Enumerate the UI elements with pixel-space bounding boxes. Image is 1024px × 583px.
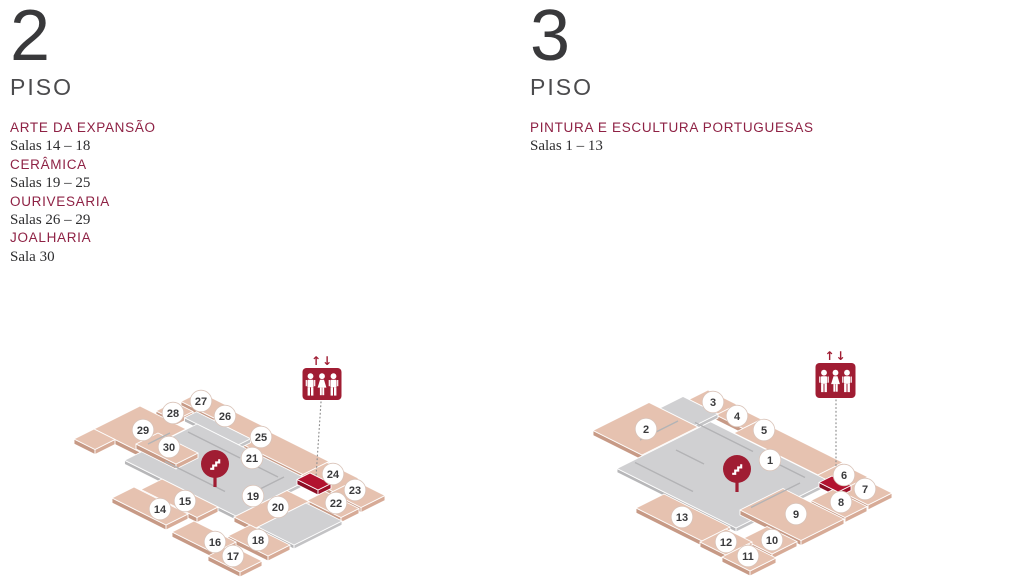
- room-marker-9: 9: [785, 503, 807, 525]
- floor-plans: ↑↓2728262930252124232219201514161817↑↓34…: [0, 0, 1024, 583]
- room-marker-30: 30: [158, 436, 180, 458]
- svg-text:6: 6: [841, 470, 847, 482]
- svg-text:5: 5: [761, 425, 767, 437]
- room-marker-10: 10: [761, 529, 783, 551]
- svg-text:12: 12: [720, 537, 732, 549]
- svg-text:14: 14: [154, 504, 167, 516]
- room-marker-22: 22: [325, 492, 347, 514]
- room-marker-6: 6: [833, 464, 855, 486]
- svg-text:17: 17: [227, 551, 239, 563]
- room-marker-28: 28: [162, 402, 184, 424]
- room-marker-20: 20: [267, 496, 289, 518]
- svg-text:7: 7: [862, 484, 868, 496]
- room-marker-14: 14: [149, 498, 171, 520]
- svg-text:8: 8: [838, 497, 844, 509]
- svg-text:19: 19: [247, 491, 259, 503]
- svg-text:24: 24: [327, 469, 340, 481]
- svg-text:↑↓: ↑↓: [824, 349, 846, 363]
- isometric-plan-floor-2: ↑↓2728262930252124232219201514161817: [74, 354, 385, 577]
- room-marker-19: 19: [242, 485, 264, 507]
- svg-text:29: 29: [137, 425, 149, 437]
- room-marker-2: 2: [635, 418, 657, 440]
- elevator-icon: ↑↓: [816, 349, 856, 398]
- room-marker-17: 17: [222, 545, 244, 567]
- svg-text:30: 30: [163, 442, 175, 454]
- svg-text:28: 28: [167, 408, 179, 420]
- room-marker-4: 4: [726, 405, 748, 427]
- svg-text:3: 3: [710, 397, 716, 409]
- svg-text:10: 10: [766, 535, 778, 547]
- room-marker-3: 3: [702, 391, 724, 413]
- room-marker-15: 15: [174, 490, 196, 512]
- room-marker-25: 25: [250, 426, 272, 448]
- room-marker-29: 29: [132, 419, 154, 441]
- floor-guide-page: { "colors":{ "pink":{"top":"#e6c2b0","le…: [0, 0, 1024, 583]
- svg-text:1: 1: [767, 455, 773, 467]
- room-marker-8: 8: [830, 491, 852, 513]
- elevator-icon: ↑↓: [303, 354, 342, 400]
- svg-text:16: 16: [209, 537, 221, 549]
- svg-text:13: 13: [676, 512, 688, 524]
- isometric-plan-floor-3: ↑↓34251678913101211: [593, 349, 892, 576]
- svg-text:22: 22: [330, 498, 342, 510]
- svg-text:21: 21: [246, 453, 258, 465]
- room-marker-1: 1: [759, 449, 781, 471]
- svg-text:23: 23: [349, 485, 361, 497]
- room-marker-12: 12: [715, 531, 737, 553]
- room-marker-24: 24: [322, 463, 344, 485]
- svg-text:4: 4: [734, 411, 741, 423]
- svg-text:18: 18: [252, 535, 264, 547]
- svg-text:11: 11: [742, 551, 754, 563]
- room-marker-11: 11: [737, 545, 759, 567]
- room-marker-5: 5: [753, 419, 775, 441]
- room-marker-27: 27: [190, 390, 212, 412]
- room-marker-16: 16: [204, 531, 226, 553]
- svg-text:20: 20: [272, 502, 284, 514]
- svg-text:9: 9: [793, 509, 799, 521]
- room-marker-23: 23: [344, 479, 366, 501]
- room-marker-26: 26: [214, 405, 236, 427]
- svg-text:↑↓: ↑↓: [311, 354, 333, 368]
- svg-text:2: 2: [643, 424, 649, 436]
- svg-text:26: 26: [219, 411, 231, 423]
- room-marker-21: 21: [241, 447, 263, 469]
- room-marker-7: 7: [854, 478, 876, 500]
- room-marker-13: 13: [671, 506, 693, 528]
- svg-text:25: 25: [255, 432, 267, 444]
- room-marker-18: 18: [247, 529, 269, 551]
- svg-text:15: 15: [179, 496, 191, 508]
- svg-text:27: 27: [195, 396, 207, 408]
